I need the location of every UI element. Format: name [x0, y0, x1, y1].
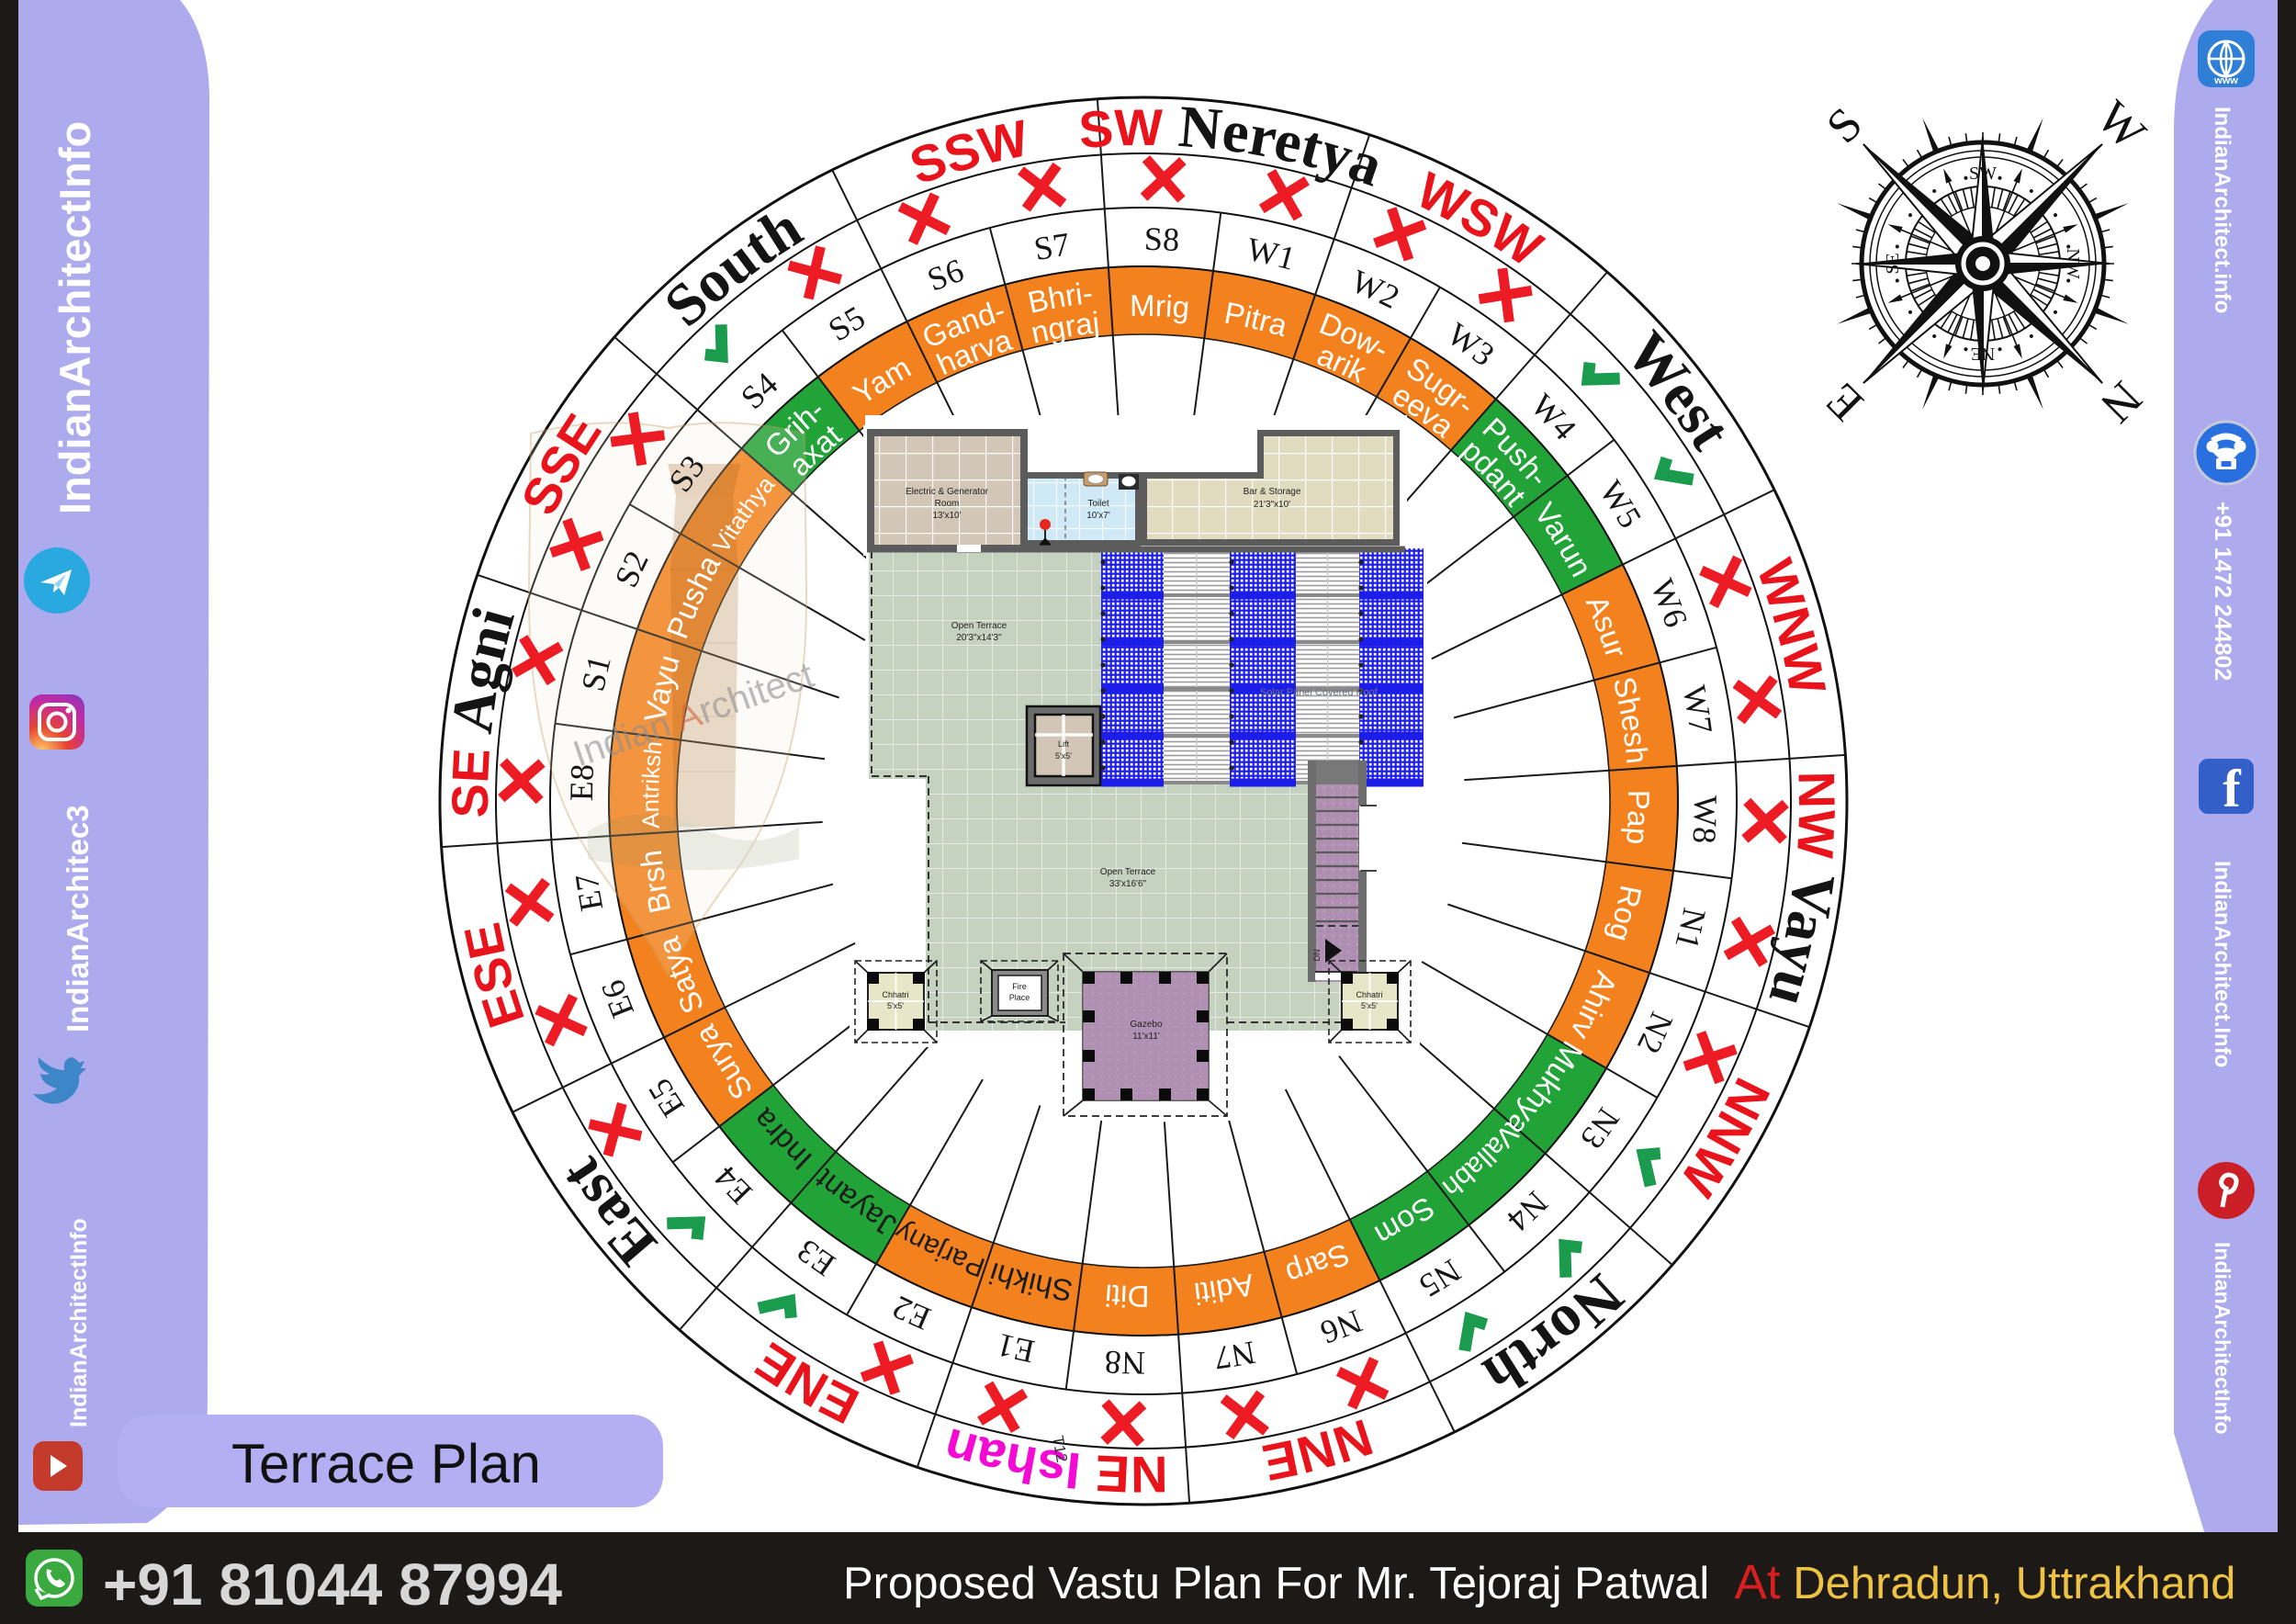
- svg-text:Antriksh: Antriksh: [636, 739, 668, 829]
- svg-text:20'3"x14'3": 20'3"x14'3": [956, 633, 1002, 643]
- svg-text:Mrig: Mrig: [1130, 288, 1191, 324]
- svg-text:5'x5': 5'x5': [1361, 1001, 1378, 1010]
- svg-text:Bar & Storage: Bar & Storage: [1244, 487, 1301, 497]
- svg-text:DN: DN: [1312, 950, 1322, 962]
- svg-text:S8: S8: [1144, 220, 1181, 258]
- svg-text:33'x16'6": 33'x16'6": [1109, 879, 1147, 889]
- svg-text:SE: SE: [1883, 253, 1903, 274]
- svg-text:Room: Room: [935, 499, 960, 509]
- svg-text:Terrace Plan: Terrace Plan: [231, 1433, 541, 1494]
- svg-text:IndianArchitectInfo: IndianArchitectInfo: [2211, 1242, 2234, 1435]
- svg-text:10'x7': 10'x7': [1086, 511, 1110, 521]
- svg-text:Chhatri: Chhatri: [1356, 990, 1382, 999]
- svg-text:Lift: Lift: [1058, 739, 1070, 749]
- svg-text:11'x11': 11'x11': [1132, 1032, 1160, 1042]
- svg-text:+91 1472 244802: +91 1472 244802: [2210, 502, 2235, 681]
- svg-text:+91 81044 87994: +91 81044 87994: [103, 1551, 562, 1618]
- svg-text:S7: S7: [1031, 226, 1072, 268]
- svg-text:W8: W8: [1685, 795, 1724, 845]
- svg-text:Open Terrace: Open Terrace: [1100, 867, 1156, 877]
- svg-text:Solar Panel Covered Roof: Solar Panel Covered Roof: [1260, 687, 1379, 698]
- svg-text:Chhatri: Chhatri: [882, 990, 908, 999]
- svg-text:Toilet: Toilet: [1087, 499, 1109, 509]
- svg-text:N7: N7: [1212, 1334, 1258, 1377]
- svg-text:N8: N8: [1104, 1344, 1146, 1382]
- svg-text:SW: SW: [1969, 164, 1997, 184]
- svg-text:Place: Place: [1009, 993, 1030, 1002]
- svg-text:13'x10': 13'x10': [932, 511, 961, 521]
- svg-text:IndianArchitec3: IndianArchitec3: [61, 805, 95, 1032]
- svg-text:IndianArchitectInfo: IndianArchitectInfo: [66, 1218, 92, 1427]
- svg-text:f: f: [2223, 759, 2241, 818]
- svg-text:IndianArchitectInfo: IndianArchitectInfo: [51, 121, 99, 514]
- svg-text:21'3"x10': 21'3"x10': [1254, 500, 1290, 510]
- svg-text:E8: E8: [563, 763, 601, 802]
- svg-text:Electric & Generator: Electric & Generator: [906, 487, 989, 497]
- svg-text:NW: NW: [2063, 248, 2083, 278]
- svg-text:W7: W7: [1676, 682, 1720, 736]
- svg-text:Proposed Vastu Plan For Mr. Te: Proposed Vastu Plan For Mr. Tejoraj Patw…: [843, 1555, 2235, 1609]
- svg-text:www: www: [2213, 75, 2238, 86]
- svg-text:Open Terrace: Open Terrace: [951, 621, 1007, 631]
- svg-text:IndianArchitect.info: IndianArchitect.info: [2210, 107, 2234, 313]
- svg-text:5'x5': 5'x5': [1055, 751, 1072, 761]
- svg-text:IndianArchitect.Info: IndianArchitect.Info: [2210, 861, 2234, 1067]
- svg-text:Pap: Pap: [1620, 790, 1656, 846]
- svg-text:5'x5': 5'x5': [887, 1001, 904, 1010]
- svg-text:NE: NE: [1971, 344, 1996, 364]
- svg-text:Diti: Diti: [1104, 1278, 1150, 1314]
- svg-text:Fire: Fire: [1012, 982, 1027, 991]
- svg-text:Gazebo: Gazebo: [1130, 1020, 1162, 1030]
